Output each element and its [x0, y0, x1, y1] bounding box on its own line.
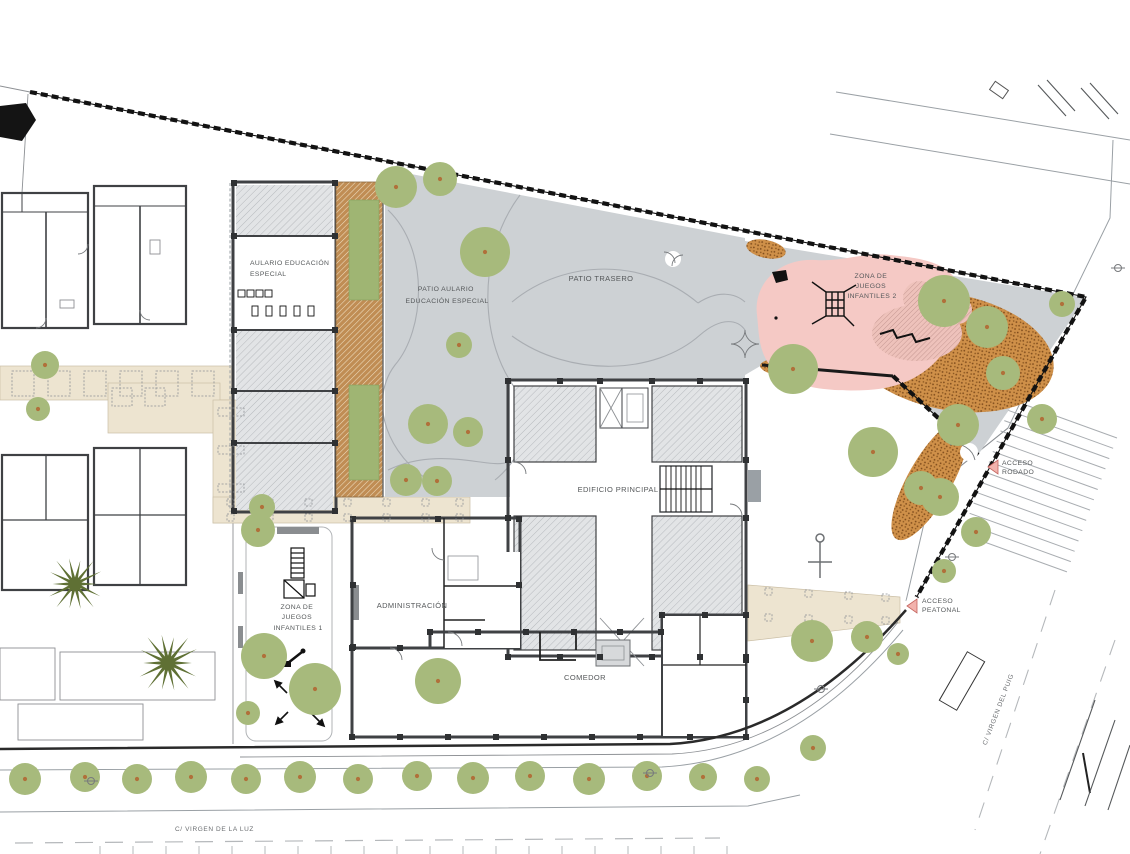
column: [743, 657, 749, 663]
room: [652, 386, 742, 462]
tree: [31, 351, 59, 379]
palm-tree-icon: [140, 635, 197, 691]
road-marking: [1060, 700, 1095, 800]
tree: [70, 762, 100, 792]
classroom: [236, 331, 333, 390]
column: [475, 629, 481, 635]
column: [505, 654, 511, 660]
sports-court: [0, 648, 55, 700]
sports-court: [60, 652, 215, 700]
curb-ticks: [100, 846, 727, 854]
tree: [932, 559, 956, 583]
column: [743, 734, 749, 740]
tree: [289, 663, 341, 715]
tree: [343, 764, 373, 794]
play-item-icon: [774, 316, 777, 319]
column: [332, 508, 338, 514]
tree: [800, 735, 826, 761]
label-patio-trasero: PATIO TRASERO: [569, 274, 634, 283]
column: [557, 378, 563, 384]
tree: [921, 478, 959, 516]
tree: [453, 417, 483, 447]
existing-building: [2, 193, 88, 328]
tree: [375, 166, 417, 208]
road-marking: [1085, 720, 1115, 806]
column: [505, 378, 511, 384]
column: [231, 180, 237, 186]
tree: [175, 761, 207, 793]
column: [445, 734, 451, 740]
street-furniture-box: [990, 81, 1009, 98]
top-right-street-edge-1: [836, 92, 1130, 140]
flag-mast-icon: [808, 534, 832, 578]
room: [514, 386, 596, 462]
tree: [851, 621, 883, 653]
column: [231, 233, 237, 239]
service-unit: [748, 470, 761, 502]
column: [350, 582, 356, 588]
column: [332, 180, 338, 186]
column: [617, 629, 623, 635]
column: [349, 645, 355, 651]
column: [743, 697, 749, 703]
tree: [887, 643, 909, 665]
label-aulario: AULARIO EDUCACIÓN ESPECIAL: [250, 258, 332, 278]
classroom: [236, 392, 333, 442]
column: [597, 654, 603, 660]
tree: [446, 332, 472, 358]
column: [231, 508, 237, 514]
column: [697, 654, 703, 660]
parking-sign-box: [939, 652, 984, 710]
door-arc: [514, 462, 526, 474]
tree: [791, 620, 833, 662]
column: [427, 629, 433, 635]
parking-stripe: [977, 493, 1082, 531]
tree: [408, 404, 448, 444]
tree: [937, 404, 979, 446]
tree: [423, 162, 457, 196]
door-arc: [36, 318, 46, 328]
column: [697, 378, 703, 384]
road-marking: [1047, 80, 1075, 111]
bench: [238, 626, 243, 648]
column: [743, 515, 749, 521]
column: [589, 734, 595, 740]
tree: [918, 275, 970, 327]
label-administracion: ADMINISTRACIÓN: [377, 601, 448, 610]
tree: [1027, 404, 1057, 434]
classroom: [236, 444, 333, 510]
column: [659, 612, 665, 618]
column: [541, 734, 547, 740]
door-arc: [78, 244, 88, 254]
column: [743, 612, 749, 618]
road-marking: [1081, 88, 1109, 119]
tree: [231, 764, 261, 794]
aulario-building: [230, 182, 336, 512]
tree: [9, 763, 41, 795]
column: [523, 629, 529, 635]
column: [516, 516, 522, 522]
column: [349, 734, 355, 740]
tree: [457, 762, 489, 794]
parking-stripe: [989, 462, 1094, 500]
road-marking: [1108, 745, 1130, 810]
bench: [238, 572, 243, 594]
label-calle-puig: C/ VIRGEN DEL PUIG: [982, 673, 1016, 746]
parking-stripe: [1008, 410, 1113, 448]
column: [557, 654, 563, 660]
tree: [744, 766, 770, 792]
walkway-connector: [108, 383, 220, 433]
tree: [415, 658, 461, 704]
tree: [460, 227, 510, 277]
tree: [390, 464, 422, 496]
label-acceso-peatonal: ACCESO PEATONAL: [922, 598, 961, 614]
column: [505, 457, 511, 463]
column: [332, 440, 338, 446]
bench: [277, 527, 319, 534]
column: [231, 327, 237, 333]
top-right-street-edge-2: [830, 134, 1130, 184]
column: [702, 612, 708, 618]
label-edificio-principal: EDIFICIO PRINCIPAL: [578, 485, 659, 494]
column: [397, 734, 403, 740]
wc-fixtures: [238, 290, 314, 316]
tree: [961, 517, 991, 547]
door-arc: [432, 548, 444, 560]
boundary-structure: [0, 103, 36, 141]
column: [332, 233, 338, 239]
tree: [689, 763, 717, 791]
tree: [1049, 291, 1075, 317]
furniture: [150, 240, 160, 254]
furniture: [60, 300, 74, 308]
label-comedor: COMEDOR: [564, 673, 606, 682]
column: [649, 654, 655, 660]
tree: [236, 701, 260, 725]
lawn-bed: [349, 385, 379, 480]
parcel-line: [0, 86, 30, 92]
classroom: [236, 185, 333, 235]
sports-court: [18, 704, 143, 740]
planter-strip: [336, 172, 383, 497]
street-lamp-icon: [1111, 265, 1125, 272]
existing-building: [2, 455, 88, 590]
tree: [26, 397, 50, 421]
bottom-street-far-edge: [0, 795, 800, 812]
door-arc: [730, 504, 742, 516]
tree: [966, 306, 1008, 348]
tree: [515, 761, 545, 791]
bottom-street-centerline: [15, 838, 720, 843]
right-street-centerline-2: [1040, 640, 1115, 854]
column: [637, 734, 643, 740]
tree: [986, 356, 1020, 390]
tree: [848, 427, 898, 477]
tree: [402, 761, 432, 791]
column: [332, 388, 338, 394]
administracion-building: [352, 518, 520, 648]
tree: [122, 764, 152, 794]
column: [435, 516, 441, 522]
column: [687, 734, 693, 740]
right-street-centerline: [975, 590, 1055, 830]
right-street-dark-mark: [1083, 753, 1090, 793]
kitchen: [663, 616, 745, 736]
site-plan-page: AULARIO EDUCACIÓN ESPECIAL PATIO AULARIO…: [0, 0, 1130, 854]
tree: [249, 494, 275, 520]
road-marking: [1038, 85, 1066, 116]
bench: [353, 585, 359, 620]
tree: [241, 633, 287, 679]
lawn-bed: [349, 200, 379, 300]
tree: [284, 761, 316, 793]
column: [332, 327, 338, 333]
site-plan-drawing: AULARIO EDUCACIÓN ESPECIAL PATIO AULARIO…: [0, 0, 1130, 854]
column: [231, 388, 237, 394]
parking-stripe: [1004, 421, 1109, 459]
column: [649, 378, 655, 384]
column: [231, 440, 237, 446]
column: [516, 582, 522, 588]
gate-opening: [665, 251, 681, 267]
tree: [632, 761, 662, 791]
door-arc: [140, 310, 150, 320]
column: [597, 378, 603, 384]
vestibule: [596, 640, 630, 666]
parking-stripe: [981, 482, 1086, 520]
column: [743, 457, 749, 463]
column: [571, 629, 577, 635]
staircase: [660, 466, 712, 512]
tree: [573, 763, 605, 795]
label-calle-luz: C/ VIRGEN DE LA LUZ: [175, 826, 254, 833]
parking-stripe: [985, 472, 1090, 510]
column: [658, 629, 664, 635]
column: [743, 378, 749, 384]
road-marking: [1090, 83, 1118, 114]
tree: [422, 466, 452, 496]
column: [505, 515, 511, 521]
column: [397, 645, 403, 651]
column: [493, 734, 499, 740]
tree: [768, 344, 818, 394]
